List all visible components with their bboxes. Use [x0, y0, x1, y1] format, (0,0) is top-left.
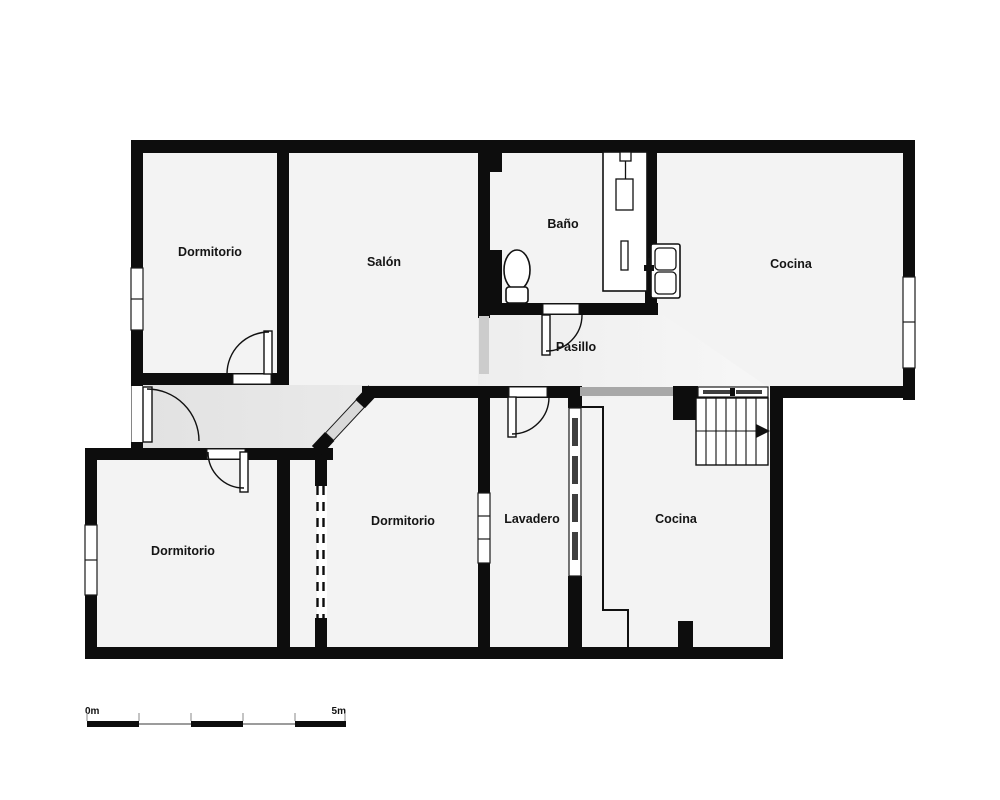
glazing-pane: [572, 418, 578, 446]
room-label-lavadero: Lavadero: [504, 512, 560, 526]
room-label-dormitorio-top-left: Dormitorio: [178, 245, 242, 259]
door-threshold-dormitorio1: [233, 374, 271, 384]
wall-stub-stairs: [673, 386, 698, 420]
door-leaf-dormitorio1: [264, 331, 272, 374]
window-interior-dormitorio3: [478, 493, 490, 563]
floor-plan-drawing: Dormitorio Salón Baño Cocina Pasillo Dor…: [0, 0, 1000, 800]
floor-plan-page: Dormitorio Salón Baño Cocina Pasillo Dor…: [0, 0, 1000, 800]
glazing-pane: [736, 390, 762, 394]
wall-lavadero-right-top: [568, 386, 582, 408]
glazing-pane: [703, 390, 730, 394]
door-threshold-bano: [543, 304, 579, 314]
wall-lavadero-right-bottom: [568, 576, 582, 647]
exterior-wall-top: [131, 140, 915, 153]
wall-dormitorio1-salon: [277, 140, 289, 385]
door-leaf-dormitorio2: [240, 452, 248, 492]
dashed-wall: [318, 486, 324, 618]
glazing-pane: [572, 456, 578, 484]
toilet-icon: [504, 250, 530, 303]
room-label-bano: Baño: [547, 217, 579, 231]
room-label-dormitorio-bottom-left: Dormitorio: [151, 544, 215, 558]
door-threshold-lavadero: [509, 387, 547, 397]
glazing-pane: [572, 532, 578, 560]
wall-salon-bano: [478, 140, 490, 318]
scale-end-label: 5m: [332, 706, 347, 717]
wall-dormitorio2-right: [277, 448, 290, 647]
exterior-wall-bottom: [85, 647, 783, 659]
room-floor-dormitorio-top-left: [143, 152, 277, 374]
glazing-pane: [572, 494, 578, 522]
scale-segments: [87, 721, 346, 727]
door-leaf-bano: [542, 315, 550, 355]
wall-dashed-bottom-stub: [315, 618, 327, 647]
door-leaf-lavadero: [508, 397, 516, 437]
door-leaf-hall: [143, 387, 152, 442]
wall-cocina-top-bottom: [771, 386, 915, 398]
scale-ticks: [87, 713, 345, 721]
wall-cavity-floor: [290, 460, 317, 648]
wall-stub-bano-top: [490, 152, 502, 172]
exterior-wall-right-lower: [770, 386, 783, 659]
shower-icon: [603, 152, 647, 291]
scale-bar: 0m 5m: [85, 706, 346, 727]
room-label-dormitorio-middle: Dormitorio: [371, 514, 435, 528]
wall-stub-cocina-bottom: [678, 621, 693, 647]
door-opening-hall-left: [132, 386, 143, 442]
room-label-salon: Salón: [367, 255, 401, 269]
staircase: [696, 398, 770, 465]
room-label-cocina-bottom: Cocina: [655, 512, 698, 526]
window-mullion-block: [730, 388, 735, 396]
open-boundary-salon-pasillo: [479, 316, 489, 374]
open-boundary-pasillo-cocina: [580, 387, 673, 396]
room-label-cocina-top: Cocina: [770, 257, 813, 271]
room-floor-salon: [288, 152, 478, 392]
room-label-pasillo: Pasillo: [556, 340, 597, 354]
